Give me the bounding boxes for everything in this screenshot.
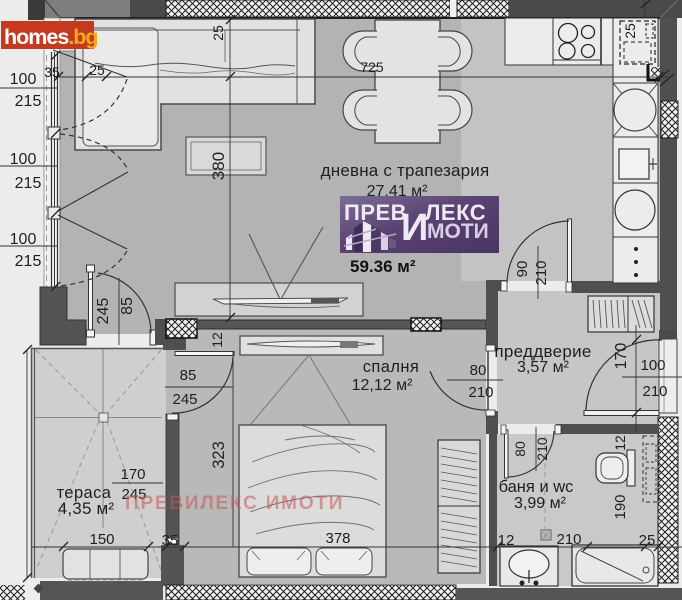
svg-text:725: 725 bbox=[360, 59, 384, 75]
svg-text:4,35 м²: 4,35 м² bbox=[58, 499, 115, 518]
svg-text:170: 170 bbox=[120, 466, 145, 483]
svg-text:дневна с трапезария: дневна с трапезария bbox=[321, 161, 490, 180]
svg-text:215: 215 bbox=[15, 175, 42, 192]
svg-text:12: 12 bbox=[209, 332, 225, 348]
svg-text:25: 25 bbox=[210, 25, 226, 41]
svg-text:210: 210 bbox=[534, 437, 550, 461]
svg-text:ПРЕВИЛЕКС ИМОТИ: ПРЕВИЛЕКС ИМОТИ bbox=[125, 493, 344, 514]
svg-text:25: 25 bbox=[622, 23, 638, 39]
svg-text:100: 100 bbox=[640, 357, 665, 374]
svg-text:85: 85 bbox=[119, 297, 136, 315]
svg-text:215: 215 bbox=[15, 253, 42, 270]
svg-text:100: 100 bbox=[10, 151, 37, 168]
svg-text:210: 210 bbox=[556, 531, 581, 548]
svg-text:25: 25 bbox=[639, 532, 656, 549]
svg-text:150: 150 bbox=[89, 531, 114, 548]
svg-text:12: 12 bbox=[498, 532, 515, 549]
svg-text:210: 210 bbox=[468, 384, 493, 401]
svg-text:МОТИ: МОТИ bbox=[427, 220, 489, 243]
svg-text:210: 210 bbox=[533, 260, 550, 285]
svg-text:245: 245 bbox=[95, 298, 112, 325]
svg-text:215: 215 bbox=[15, 93, 42, 110]
svg-text:210: 210 bbox=[642, 383, 667, 400]
svg-text:59.36 м²: 59.36 м² bbox=[350, 257, 416, 276]
svg-text:80: 80 bbox=[512, 441, 528, 457]
svg-text:378: 378 bbox=[325, 530, 350, 547]
svg-text:170: 170 bbox=[613, 343, 630, 370]
svg-text:25: 25 bbox=[89, 62, 105, 78]
svg-text:спалня: спалня bbox=[363, 358, 419, 376]
svg-text:И: И bbox=[401, 207, 428, 249]
svg-text:12,12 м²: 12,12 м² bbox=[352, 377, 413, 394]
svg-text:190: 190 bbox=[612, 494, 629, 519]
svg-text:323: 323 bbox=[210, 441, 228, 469]
svg-text:12: 12 bbox=[612, 435, 628, 451]
svg-text:100: 100 bbox=[10, 71, 37, 88]
svg-text:homes.bg: homes.bg bbox=[4, 25, 98, 49]
svg-text:100: 100 bbox=[10, 231, 37, 248]
svg-text:ПРЕВ: ПРЕВ bbox=[344, 200, 407, 225]
svg-text:3,99 м²: 3,99 м² bbox=[514, 495, 567, 512]
svg-text:380: 380 bbox=[209, 152, 228, 180]
svg-text:3,57 м²: 3,57 м² bbox=[517, 359, 570, 376]
svg-text:85: 85 bbox=[180, 367, 197, 384]
svg-text:35: 35 bbox=[44, 64, 60, 80]
svg-text:90: 90 bbox=[514, 261, 531, 278]
svg-text:80: 80 bbox=[470, 362, 487, 379]
svg-text:35: 35 bbox=[162, 532, 179, 549]
svg-text:245: 245 bbox=[172, 391, 197, 408]
svg-text:баня и wc: баня и wc bbox=[499, 478, 574, 496]
